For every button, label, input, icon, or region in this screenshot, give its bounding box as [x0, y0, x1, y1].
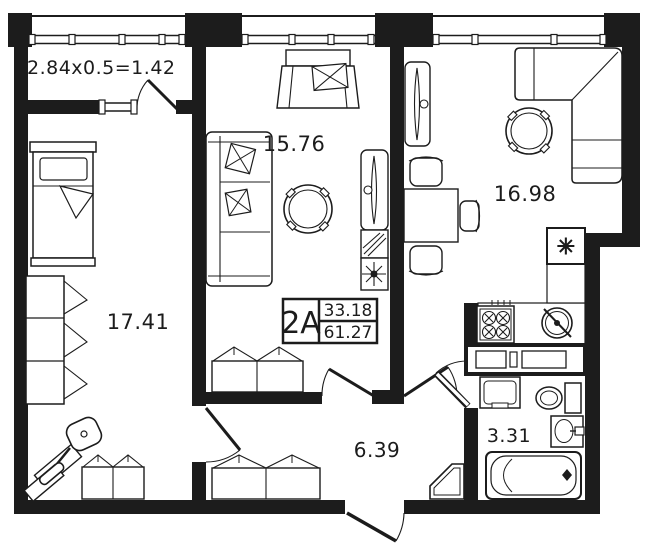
- living-area-value: 33.18: [324, 301, 373, 321]
- balcony-area-label: 2.84x0.5=1.42: [27, 57, 176, 79]
- bathroom-area-label: 3.31: [487, 425, 531, 447]
- bedroom-area-label: 17.41: [107, 310, 170, 334]
- mirror-wardrobe-kitchen: [405, 62, 430, 146]
- washing-machine: [480, 377, 520, 408]
- unit-title: 2A: [281, 306, 321, 341]
- plant: [361, 258, 388, 290]
- bathtub: [486, 452, 581, 499]
- dining-table: [404, 189, 458, 242]
- hallway-area-label: 6.39: [354, 438, 401, 462]
- bed: [30, 142, 96, 266]
- floor-plan: ✳: [0, 0, 646, 549]
- kitchen-living-area-label: 16.98: [494, 182, 557, 206]
- living-area-label: 15.76: [263, 132, 326, 156]
- floor-plan-drawing: ✳: [0, 0, 646, 549]
- stove: [477, 300, 514, 343]
- washbasin: [551, 416, 584, 447]
- fridge: ✳: [547, 228, 585, 264]
- total-area-value: 61.27: [324, 323, 373, 343]
- bathroom-vanity: [466, 345, 585, 374]
- mirror-wardrobe-living: [361, 150, 388, 230]
- armchair: [277, 50, 359, 108]
- shelf-unit: [361, 230, 388, 258]
- title-block: 2A 33.18 61.27: [281, 299, 377, 343]
- fridge-symbol: ✳: [557, 235, 575, 260]
